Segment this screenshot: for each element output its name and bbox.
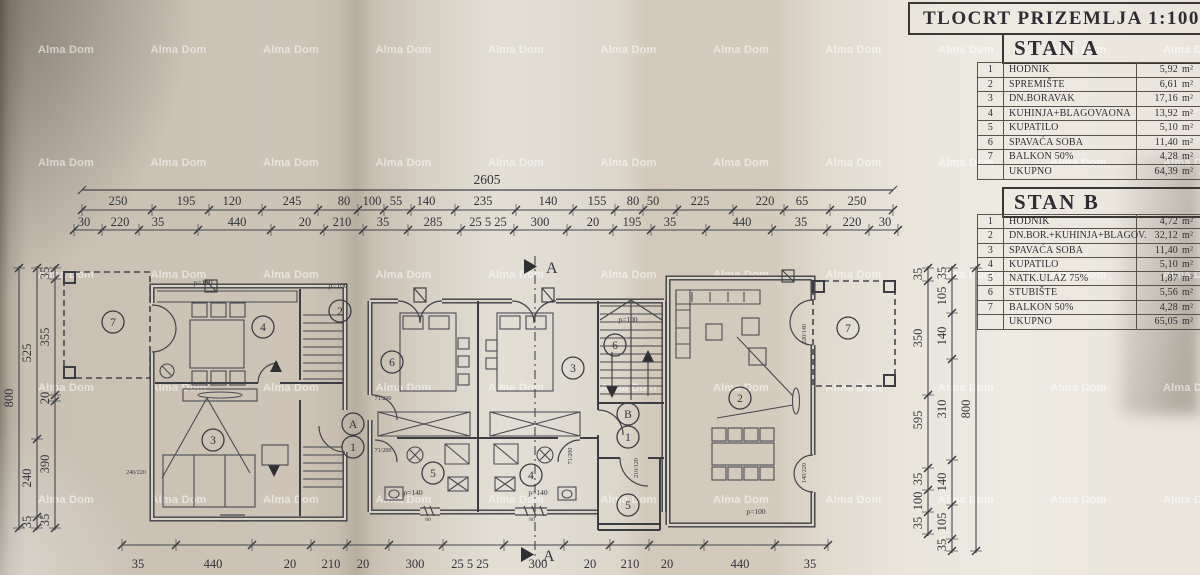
dimension-label: 350: [911, 329, 925, 348]
dimension-label: 240: [20, 469, 34, 488]
floor-height-label: p=100: [618, 315, 637, 324]
dimension-label: 20: [299, 215, 312, 229]
dimension-label: 35: [935, 267, 949, 280]
dimension-label: 285: [424, 215, 443, 229]
dimension-label: 35: [911, 473, 925, 486]
dimension-label: 20: [661, 557, 674, 571]
dimension-label: 390: [38, 455, 52, 474]
room-number: 7: [110, 317, 116, 329]
dimension-label: 65: [796, 194, 809, 208]
table-row: 5NATK.ULAZ 75%1,87m²: [978, 272, 1200, 286]
window-size-label: 80: [425, 517, 431, 523]
table-row: 6STUBIŠTE5,56m²: [978, 286, 1200, 300]
dimension-label: 80: [627, 194, 640, 208]
dimension-label: 100: [911, 492, 925, 511]
dimension-label: 440: [204, 557, 223, 571]
dimension-label: 595: [911, 411, 925, 430]
dimension-label: 235: [474, 194, 493, 208]
table-row: 7BALKON 50%4,28m²: [978, 150, 1200, 165]
room-number: 5: [625, 500, 631, 512]
table-row: 4KUPATILO5,10m²: [978, 258, 1200, 272]
dimension-label: 800: [959, 400, 973, 419]
dimension-label: 35: [38, 267, 52, 280]
floor-plan-photo: Alma DomAlma DomAlma DomAlma DomAlma Dom…: [0, 0, 1200, 575]
door-size-label: 71/200: [375, 396, 392, 402]
stan-b-table: 1HODNIK4,72m² 2DN.BOR.+KUHINJA+BLAGOV.32…: [977, 214, 1200, 330]
dimension-label: 440: [733, 215, 752, 229]
table-row: 5KUPATILO5,10m²: [978, 121, 1200, 136]
dimension-label: 25 5 25: [469, 215, 507, 229]
dimension-label: 245: [283, 194, 302, 208]
room-number: 7: [845, 323, 851, 335]
table-total-row: UKUPNO65,05m²: [978, 315, 1200, 329]
door-arcs: [152, 300, 813, 492]
floor-height-label: p=100: [193, 278, 212, 287]
dimension-label: 30: [879, 215, 892, 229]
floor-height-label: p=100: [746, 507, 765, 516]
unit-a-walls: [152, 286, 345, 519]
dimension-label: 195: [623, 215, 642, 229]
arrow-up-icon: [642, 350, 654, 362]
dimension-label: 250: [848, 194, 867, 208]
dimension-label: 20: [284, 557, 297, 571]
dimension-label: 220: [756, 194, 775, 208]
table-row: 2DN.BOR.+KUHINJA+BLAGOV.32,12m²: [978, 229, 1200, 243]
dimension-label: 100: [363, 194, 382, 208]
dimension-label: 220: [843, 215, 862, 229]
dimension-label: 300: [406, 557, 425, 571]
dimension-label: 105: [935, 287, 949, 306]
floor-height-label: p=100: [328, 281, 347, 290]
room-number: 2: [737, 393, 743, 405]
dimension-label: 35: [664, 215, 677, 229]
arrow-down-icon: [606, 386, 618, 398]
floor-height-label: p=140: [528, 488, 547, 497]
table-row: 4KUHINJA+BLAGOVAONA13,92m²: [978, 107, 1200, 122]
door-size-label: 71/200: [568, 448, 574, 465]
dimension-label: 800: [2, 389, 16, 408]
room-number: A: [349, 419, 358, 431]
dimension-label: 155: [588, 194, 607, 208]
dimension-label: 210: [621, 557, 640, 571]
dimension-label: 35: [911, 268, 925, 281]
table-row: 7BALKON 50%4,28m²: [978, 301, 1200, 315]
section-marker-top: A: [546, 260, 558, 277]
terrace-a: [64, 272, 150, 378]
dimension-label: 35: [911, 517, 925, 530]
balcony-b: [813, 281, 895, 386]
dimension-total: 2605: [474, 172, 501, 187]
dimension-label: 310: [935, 400, 949, 419]
dimension-label: 220: [111, 215, 130, 229]
dimension-label: 80: [338, 194, 351, 208]
dimension-label: 120: [223, 194, 242, 208]
door-size-label: 220/140: [802, 324, 808, 344]
dimension-label: 35: [935, 539, 949, 552]
window-size-label: 80: [529, 517, 535, 523]
dimension-label: 35: [152, 215, 165, 229]
dimension-label: 35: [377, 215, 390, 229]
dimension-label: 20: [357, 557, 370, 571]
door-size-label: 71/200: [375, 448, 392, 454]
table-row: 6SPAVAĆA SOBA11,40m²: [978, 136, 1200, 151]
dimension-label: 55: [390, 194, 403, 208]
room-number: B: [624, 409, 632, 421]
dimension-label: 20: [584, 557, 597, 571]
dimension-label: 105: [935, 513, 949, 532]
dimension-label: 140: [417, 194, 436, 208]
dimension-label: 35: [804, 557, 817, 571]
dimension-label: 210: [333, 215, 352, 229]
stair-treads: [303, 447, 343, 487]
dimension-label: 20: [38, 392, 52, 405]
room-number: 4: [260, 322, 266, 334]
dimension-label: 300: [529, 557, 548, 571]
dimension-label: 140: [539, 194, 558, 208]
dimension-label: 20: [587, 215, 600, 229]
dimension-label: 440: [731, 557, 750, 571]
room-number: 3: [570, 363, 576, 375]
door-size-label: 210/120: [634, 458, 640, 478]
stairs-and-arrows: [268, 300, 662, 477]
room-number: 1: [350, 442, 356, 454]
door-size-label: 240/220: [126, 470, 146, 476]
dimension-label: 300: [531, 215, 550, 229]
dimension-label: 195: [177, 194, 196, 208]
dimension-label: 250: [109, 194, 128, 208]
table-row: 2SPREMIŠTE6,61m²: [978, 78, 1200, 93]
dimension-label: 25 5 25: [451, 557, 489, 571]
dimension-label: 140: [935, 327, 949, 346]
room-number: 4: [528, 470, 534, 482]
dimension-label: 140: [935, 473, 949, 492]
room-number: 6: [389, 357, 395, 369]
room-number: 2: [337, 306, 343, 318]
dimension-label: 35: [20, 516, 34, 529]
dimension-label: 355: [38, 328, 52, 347]
dimension-label: 35: [795, 215, 808, 229]
door-size-label: 140/220: [802, 463, 808, 483]
table-total-row: UKUPNO64,39m²: [978, 165, 1200, 180]
dimension-label: 440: [228, 215, 247, 229]
dimension-label: 210: [322, 557, 341, 571]
dimension-label: 525: [20, 344, 34, 363]
dimension-label: 35: [132, 557, 145, 571]
floor-height-label: p=140: [403, 488, 422, 497]
stan-a-table: 1HODNIK5,92m² 2SPREMIŠTE6,61m² 3DN.BORAV…: [977, 62, 1200, 180]
table-row: 3DN.BORAVAK17,16m²: [978, 92, 1200, 107]
room-number: 5: [430, 468, 436, 480]
stair-treads: [303, 315, 343, 379]
dimension-label: 225: [691, 194, 710, 208]
stan-a-header: STAN A: [1002, 33, 1200, 64]
table-row: 3SPAVAĆA SOBA11,40m²: [978, 244, 1200, 258]
dimension-label: 30: [78, 215, 91, 229]
table-row: 1HODNIK4,72m²: [978, 215, 1200, 229]
dimension-label: 50: [647, 194, 660, 208]
overall-dimension: 2605: [78, 172, 897, 194]
arrow-down-icon: [268, 465, 280, 477]
room-number: 3: [210, 435, 216, 447]
table-row: 1HODNIK5,92m²: [978, 63, 1200, 78]
room-number: 1: [625, 432, 631, 444]
arrow-up-icon: [270, 360, 282, 372]
page-title: TLOCRT PRIZEMLJA 1:100: [908, 2, 1200, 35]
